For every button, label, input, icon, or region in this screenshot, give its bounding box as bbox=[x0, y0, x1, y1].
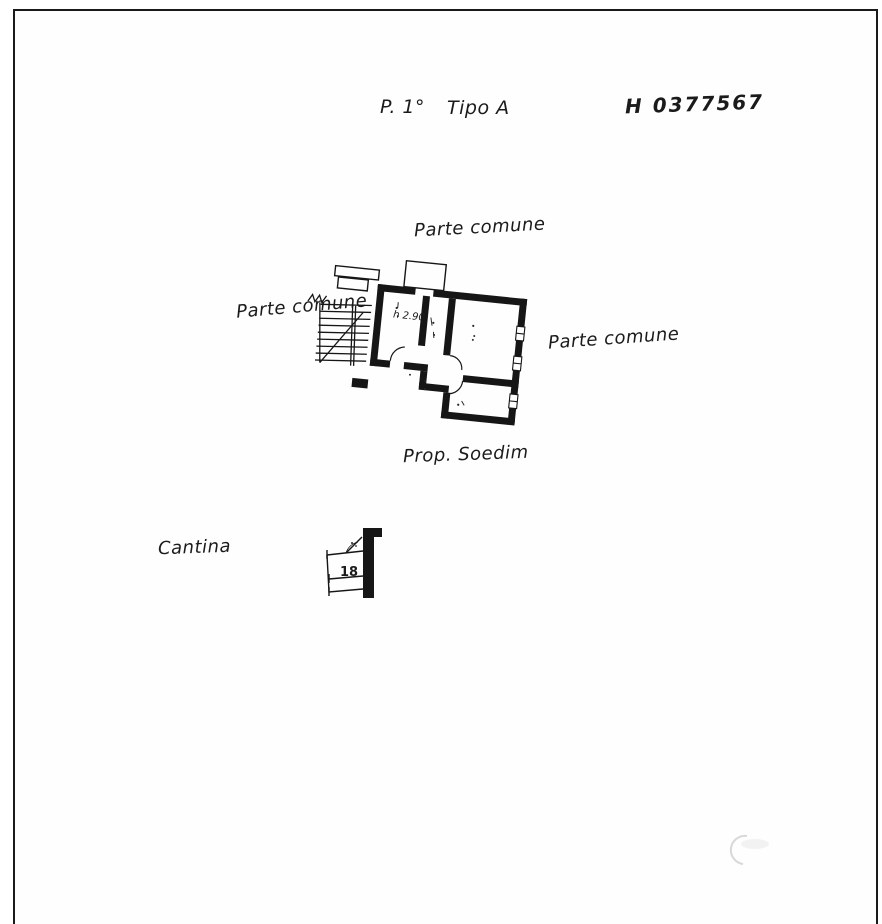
cellar-plan bbox=[300, 515, 400, 610]
label-cantina: Cantina bbox=[158, 536, 232, 560]
stamp-number: H 0377567 bbox=[625, 90, 765, 119]
type-label: Tipo A bbox=[447, 97, 510, 119]
floor-label: P. 1° bbox=[380, 96, 425, 118]
faint-stamp-mark bbox=[715, 830, 775, 870]
main-floor-plan bbox=[300, 240, 570, 480]
label-cellar-number: 18 bbox=[340, 565, 358, 580]
